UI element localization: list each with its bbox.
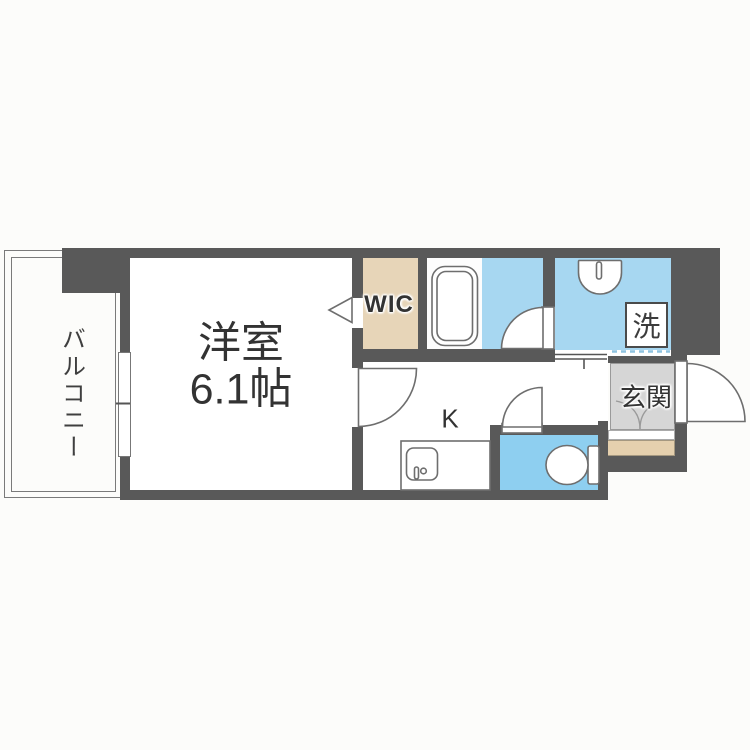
main-room-name: 洋室 [190,321,293,367]
main-room-label: 洋室 6.1帖 [190,321,293,414]
laundry-box: 洗 [625,302,668,348]
fixtures-layer [0,0,750,750]
bath-door-arc [502,307,544,348]
bathtub-inner [437,272,473,341]
entrance-door-arc [687,364,745,422]
kitchen-faucet-knob [421,468,427,474]
toilet-bowl [546,446,588,485]
laundry-label: 洗 [632,305,660,345]
washbasin-faucet [597,262,602,279]
wic-door-triangle [329,298,352,323]
kitchen-faucet [415,467,419,479]
kitchen-label: K [441,404,458,435]
floorplan: 洋室 6.1帖 バルコニー WIC K 洗 玄関 [0,0,750,750]
kitchen-sink [407,448,438,480]
toilet-door-arc [503,388,543,428]
wic-label: WIC [364,291,414,319]
entrance-label: 玄関 [620,378,672,415]
balcony-label: バルコニー [54,327,89,462]
toilet-tank [588,446,599,484]
entrance-door-leaf [675,361,687,423]
kitchen-door-arc [359,369,417,427]
main-room-size: 6.1帖 [190,367,293,413]
